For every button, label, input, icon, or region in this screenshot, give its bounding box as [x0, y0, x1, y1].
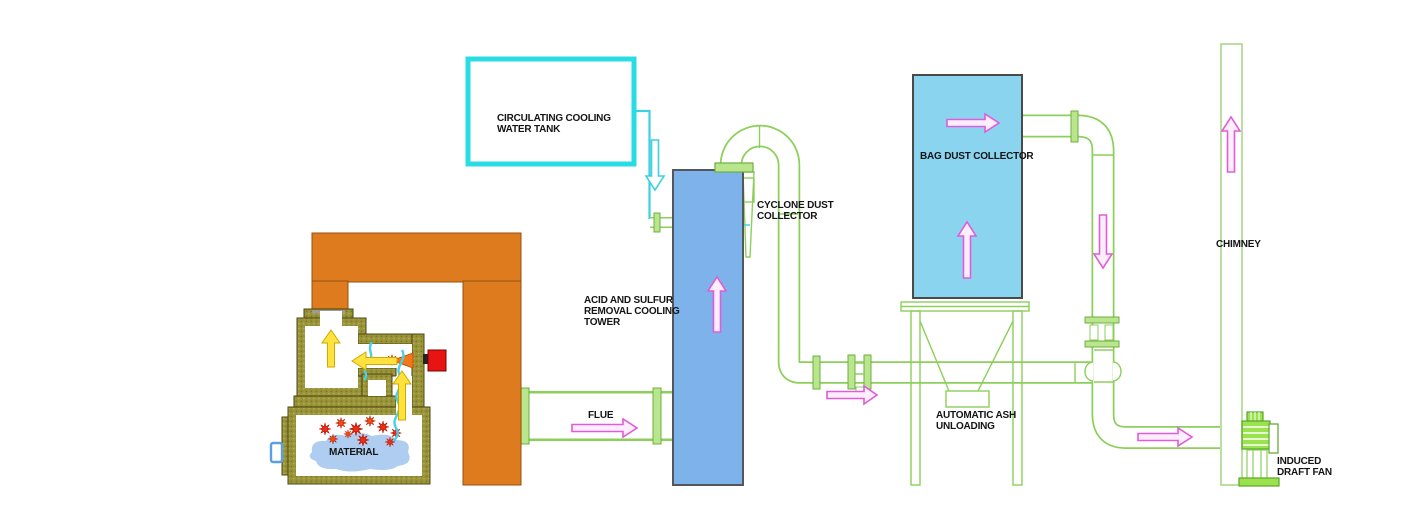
chimney	[1221, 44, 1242, 485]
label-cyclone-dust-collector: CYCLONE DUST COLLECTOR	[757, 200, 835, 222]
cyclone-top-cap	[715, 163, 753, 172]
label-chimney: CHIMNEY	[1216, 239, 1261, 250]
label-flue: FLUE	[588, 410, 613, 421]
label-circulating-cooling-water-tank: CIRCULATING COOLING WATER TANK	[497, 113, 617, 135]
acid-sulfur-cooling-tower	[673, 170, 743, 485]
bag-outlet-pipe	[1022, 126, 1220, 438]
label-automatic-ash-unloading: AUTOMATIC ASH UNLOADING	[936, 410, 1022, 432]
induced-draft-fan	[1239, 412, 1279, 486]
label-induced-draft-fan: INDUCED DRAFT FAN	[1277, 456, 1337, 478]
label-bag-dust-collector: BAG DUST COLLECTOR	[920, 151, 1033, 162]
ash-hopper-stand	[901, 302, 1029, 485]
label-material: MATERIAL	[329, 447, 378, 458]
cyclone-dust-collector	[743, 172, 754, 257]
diagram-graphics	[0, 0, 1427, 518]
circulating-water-tank	[468, 59, 634, 164]
process-flow-diagram: CIRCULATING COOLING WATER TANK ACID AND …	[0, 0, 1427, 518]
furnace-door-handle	[271, 443, 282, 462]
incinerator-furnace	[271, 233, 521, 485]
label-acid-sulfur-removal-cooling-tower: ACID AND SULFUR REMOVAL COOLING TOWER	[584, 295, 680, 328]
